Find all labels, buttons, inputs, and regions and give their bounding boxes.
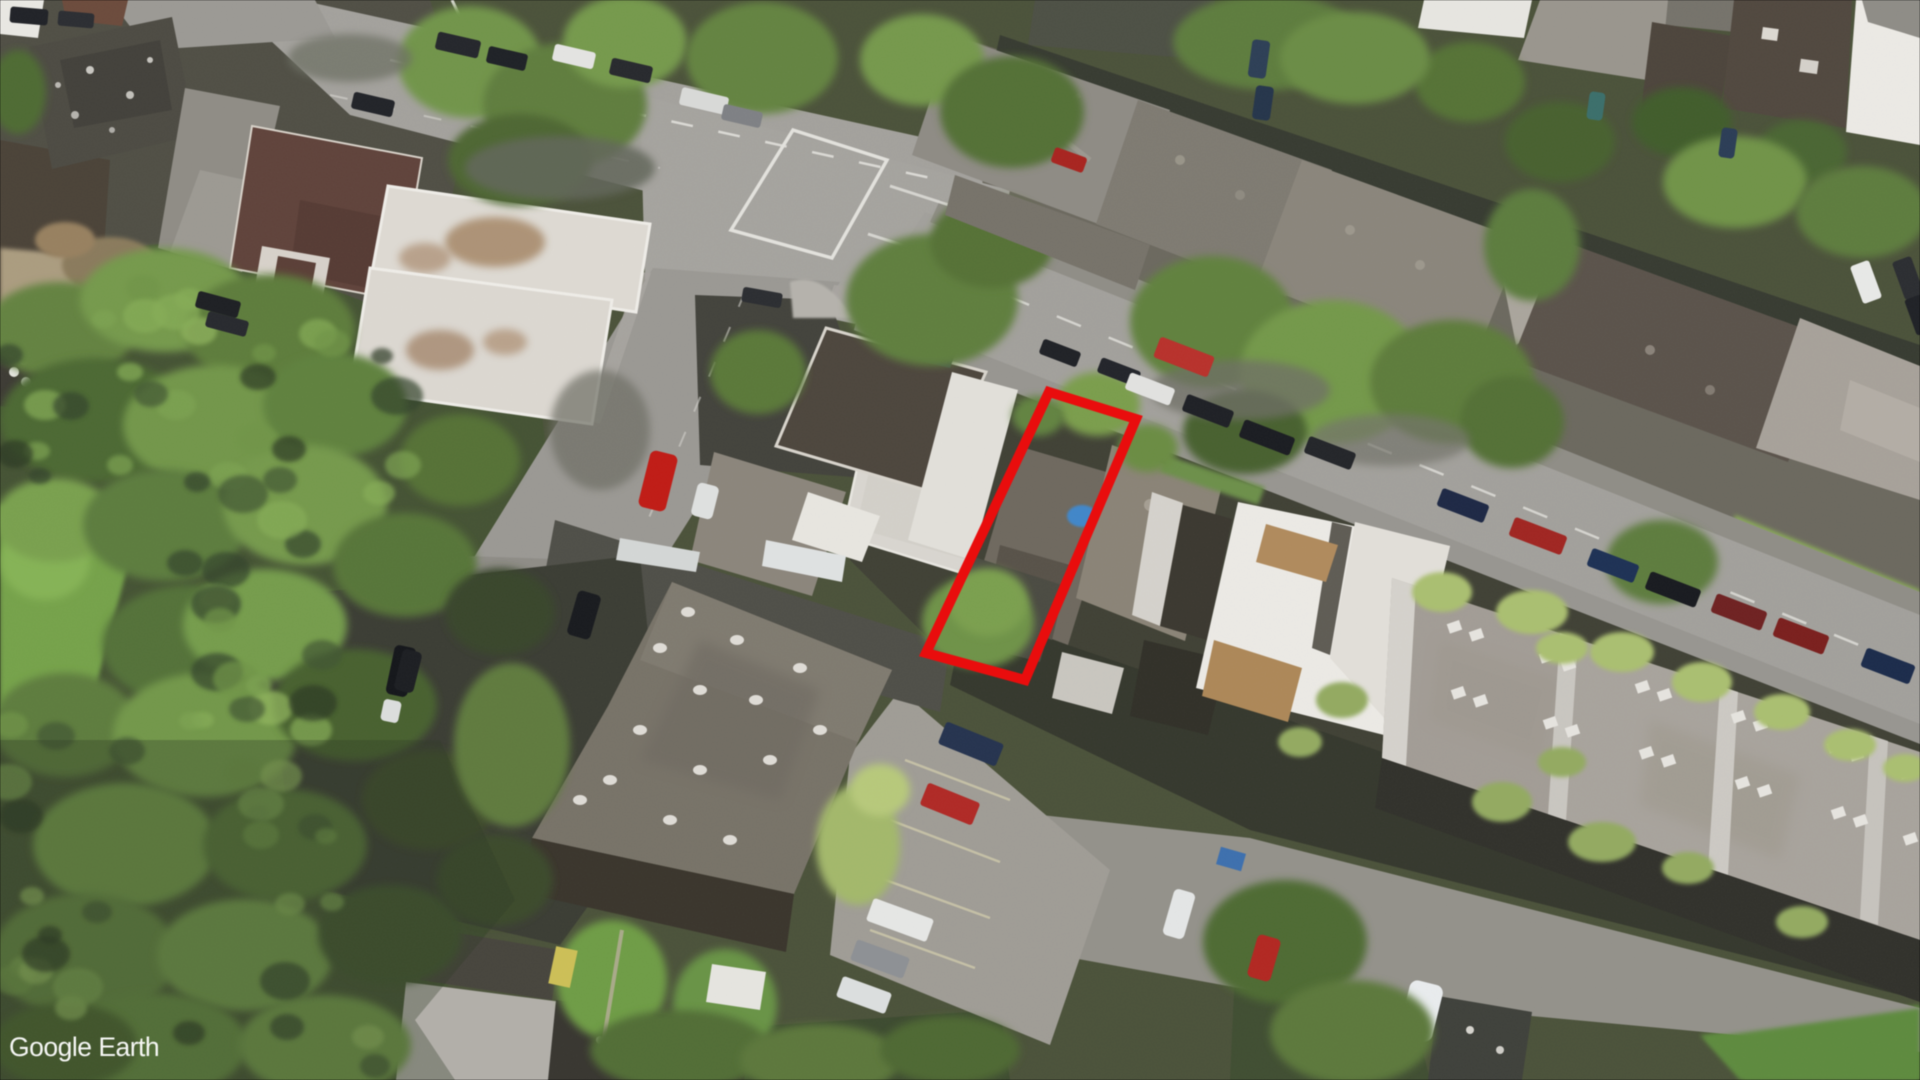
svg-text:Google Earth: Google Earth — [9, 1032, 159, 1062]
